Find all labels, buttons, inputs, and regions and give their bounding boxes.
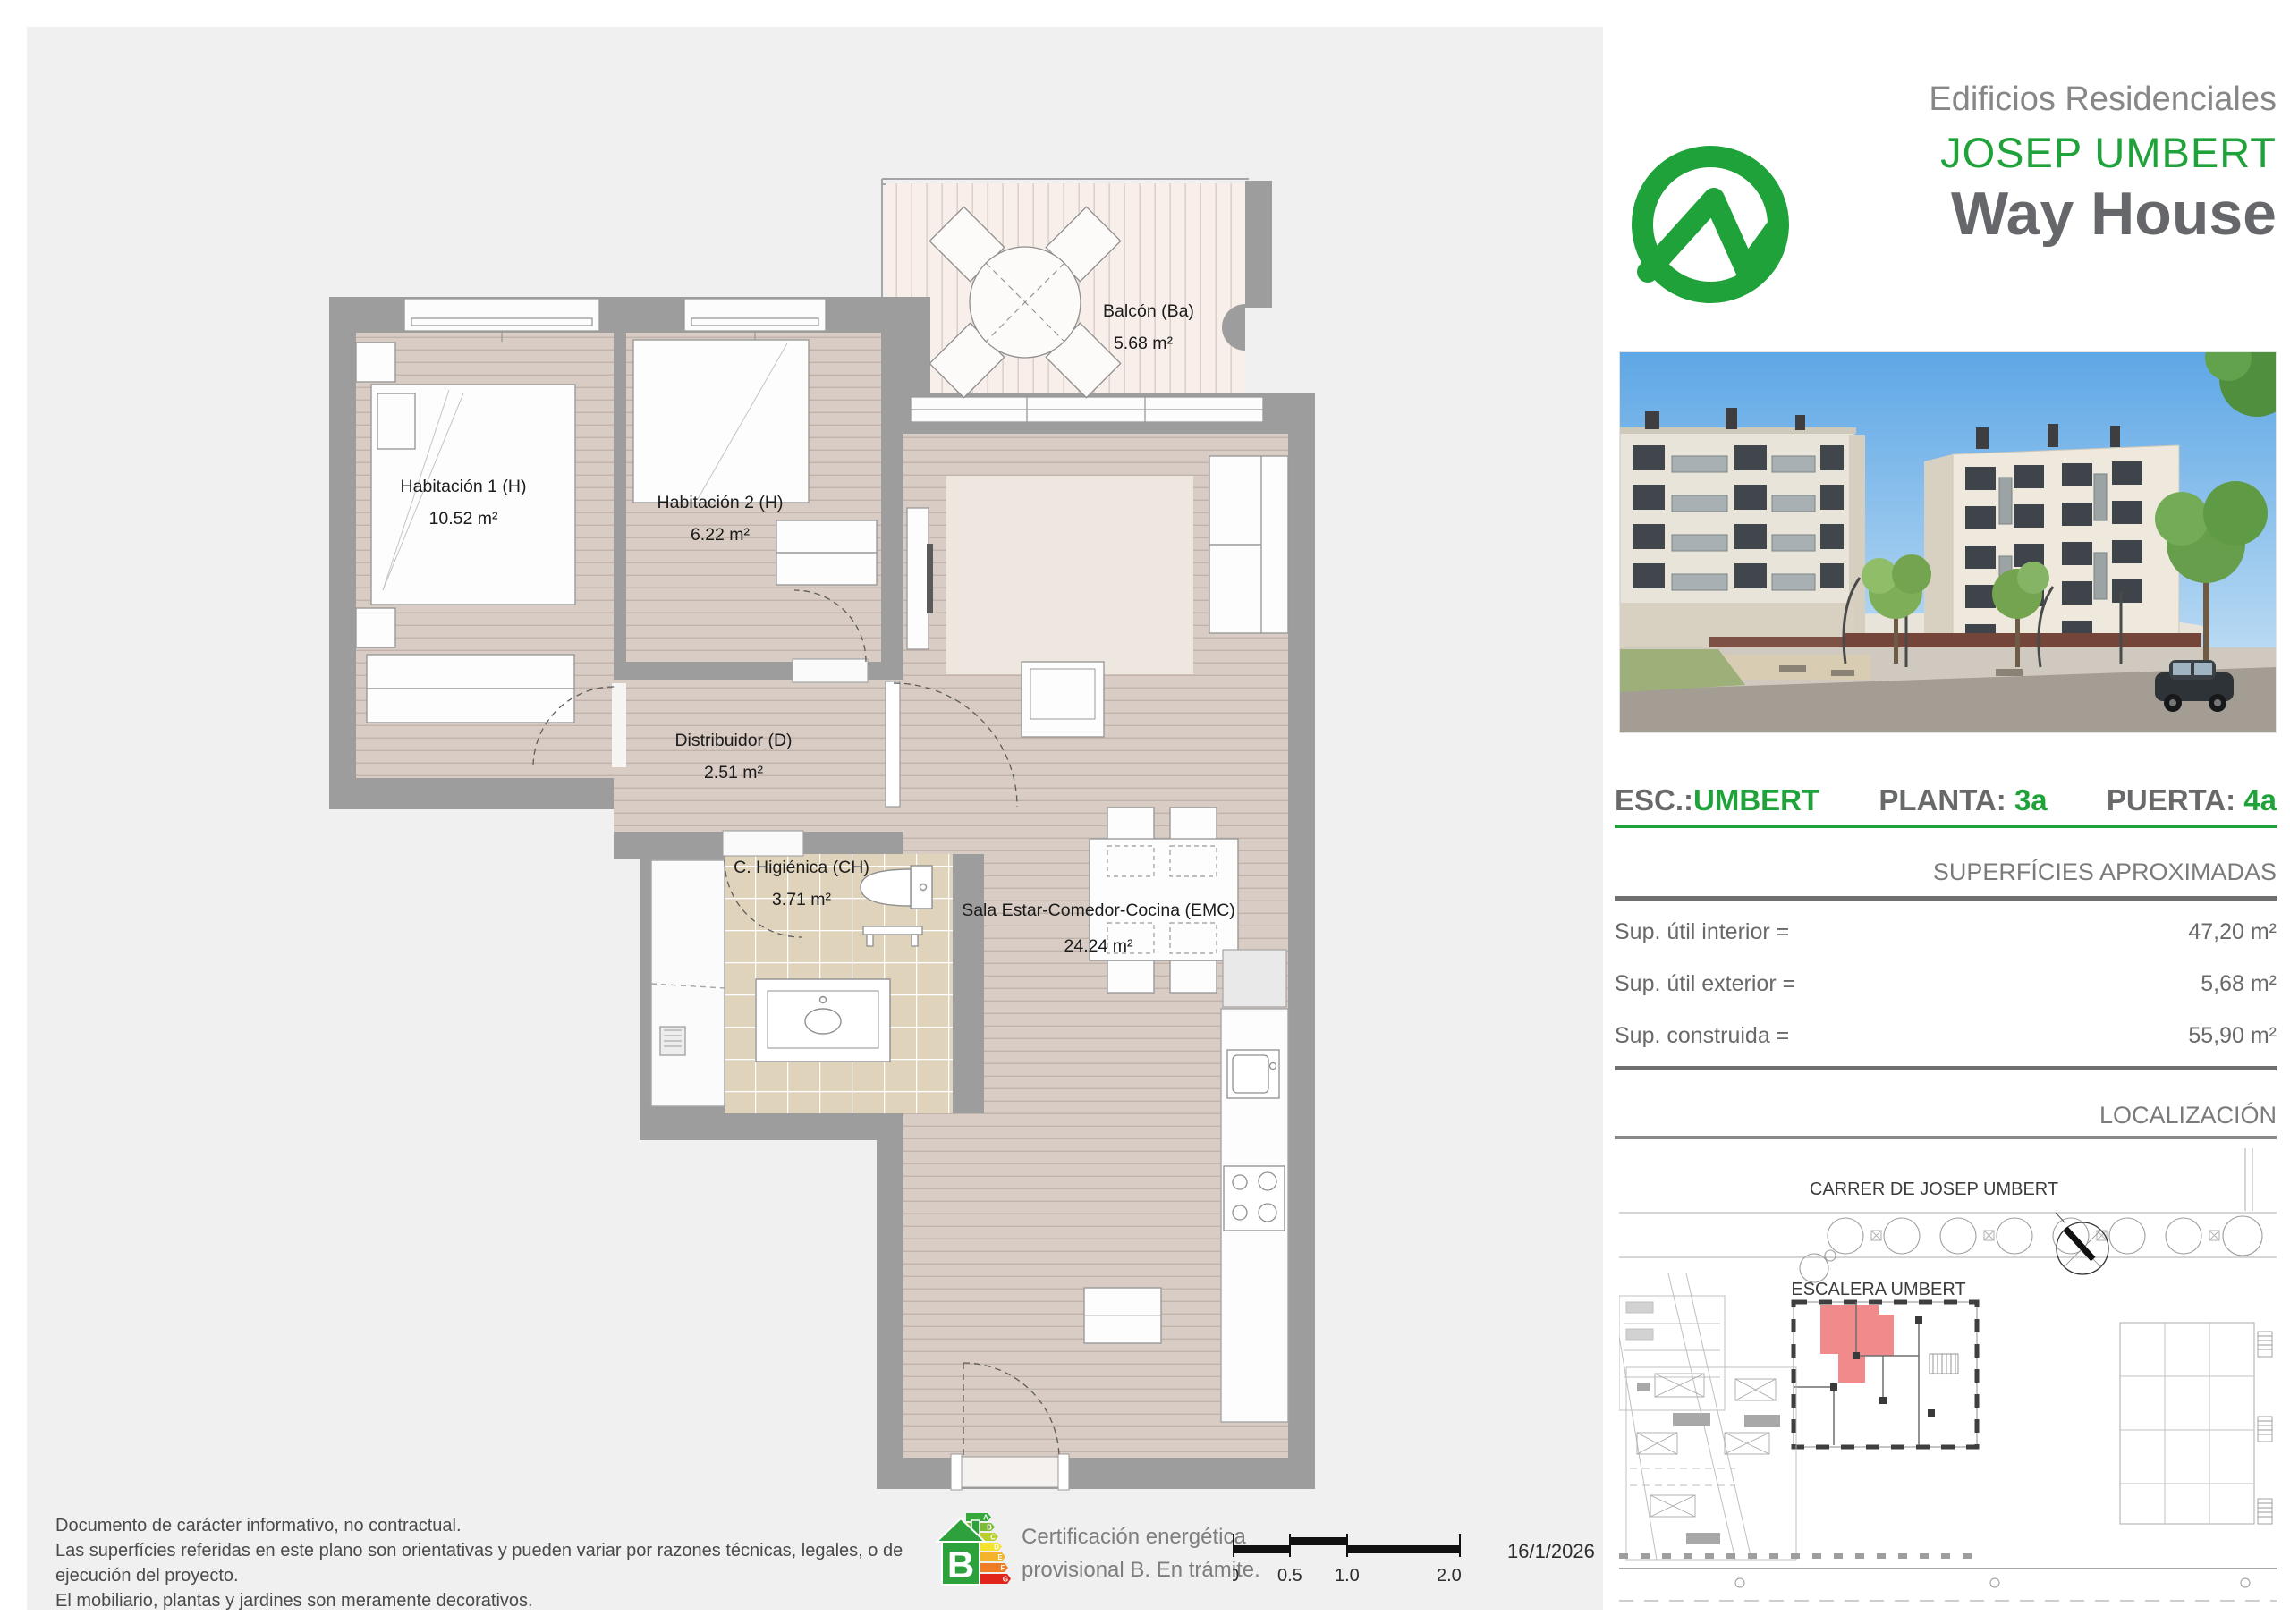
- surfaces-title: SUPERFÍCIES APROXIMADAS: [1615, 859, 2277, 886]
- surface-row: Sup. construida = 55,90 m²: [1615, 1023, 2277, 1049]
- stair-label: ESCALERA UMBERT: [1791, 1280, 1965, 1299]
- energy-text-line: Certificación energética: [1022, 1520, 1260, 1553]
- brand-logo: [1621, 132, 1800, 311]
- svg-text:F: F: [1001, 1564, 1005, 1572]
- esc-label: ESC.:: [1615, 783, 1693, 816]
- building-photo: [1619, 351, 2277, 733]
- floorplan-drawing: Habitación 1 (H) 10.52 m² Habitación 2 (…: [304, 125, 1324, 1520]
- puerta-field: PUERTA: 4a: [2107, 783, 2277, 817]
- wave-circle-logo-icon: [1621, 132, 1800, 311]
- surface-row: Sup. útil interior = 47,20 m²: [1615, 919, 2277, 945]
- escalera-building: [1794, 1302, 1977, 1447]
- surface-value: 55,90 m²: [2188, 1023, 2277, 1049]
- esc-field: ESC.:UMBERT: [1615, 783, 1819, 817]
- room-label: C. Higiénica (CH): [734, 858, 869, 877]
- surface-label: Sup. útil interior =: [1615, 919, 1789, 945]
- scale-tick: 0.5: [1277, 1566, 1302, 1586]
- header-kicker: Edificios Residenciales: [1929, 80, 2277, 119]
- room-label: Sala Estar-Comedor-Cocina (EMC): [962, 901, 1235, 920]
- scale-tick: 0: [1233, 1566, 1239, 1586]
- green-divider: [1615, 825, 2277, 828]
- rug: [946, 476, 1193, 674]
- header: Edificios Residenciales JOSEP UMBERT Way…: [1929, 80, 2277, 249]
- planta-value: 3a: [2014, 783, 2048, 816]
- disclaimer-line: El mobiliario, plantas y jardines son me…: [55, 1588, 914, 1613]
- bottom-street: [1619, 1556, 2277, 1601]
- street-label: CARRER DE JOSEP UMBERT: [1810, 1180, 2058, 1199]
- location-title: LOCALIZACIÓN: [1615, 1102, 2277, 1129]
- floorplan: Habitación 1 (H) 10.52 m² Habitación 2 (…: [304, 125, 1324, 1520]
- esc-value: UMBERT: [1693, 783, 1819, 816]
- disclaimer-line: Las superfícies referidas en este plano …: [55, 1538, 914, 1588]
- svg-text:G: G: [1003, 1576, 1008, 1584]
- disclaimer: Documento de carácter informativo, no co…: [55, 1513, 914, 1613]
- room-label: Distribuidor (D): [674, 731, 792, 750]
- surface-label: Sup. construida =: [1615, 1023, 1789, 1049]
- disclaimer-line: Documento de carácter informativo, no co…: [55, 1513, 914, 1538]
- plan-date: 16/1/2026: [1507, 1540, 1595, 1563]
- divider: [1615, 896, 2277, 901]
- scale-bar: 0 0.5 1.0 2.0 m.: [1233, 1527, 1467, 1590]
- street-lines: [1619, 1148, 2277, 1257]
- planta-field: PLANTA: 3a: [1879, 783, 2047, 817]
- unit-identifier: ESC.:UMBERT PLANTA: 3a PUERTA: 4a: [1615, 783, 2277, 817]
- room-area: 3.71 m²: [772, 890, 832, 909]
- street-trees: [1800, 1216, 2262, 1282]
- energy-certificate-icon: A B C D E F G B: [936, 1508, 1011, 1590]
- divider: [1615, 1066, 2277, 1070]
- scale-tick: 2.0 m.: [1437, 1566, 1467, 1586]
- second-building: [2120, 1323, 2272, 1524]
- kitchen-stove: [1224, 1166, 1285, 1231]
- svg-text:B: B: [987, 1524, 992, 1532]
- energy-text-line: provisional B. En trámite.: [1022, 1553, 1260, 1586]
- bed-habitacion1: [356, 343, 575, 723]
- building-right: [1924, 424, 2179, 667]
- room-label: Habitación 2 (H): [657, 493, 784, 512]
- svg-text:E: E: [997, 1553, 1003, 1561]
- site-plan-drawing: CARRER DE JOSEP UMBERT ESCALERA UMBERT: [1619, 1148, 2277, 1618]
- surface-value: 47,20 m²: [2188, 919, 2277, 945]
- building-render: [1620, 352, 2276, 732]
- room-area: 6.22 m²: [691, 525, 751, 545]
- kitchen-sink: [1227, 1050, 1279, 1098]
- planta-label: PLANTA:: [1879, 783, 2006, 816]
- shower: [651, 860, 725, 1106]
- energy-certificate-text: Certificación energética provisional B. …: [1022, 1520, 1260, 1586]
- svg-text:C: C: [990, 1534, 996, 1542]
- room-area: 24.24 m²: [1064, 936, 1133, 956]
- scale-tick: 1.0: [1335, 1566, 1360, 1586]
- puerta-value: 4a: [2243, 783, 2277, 816]
- surface-row: Sup. útil exterior = 5,68 m²: [1615, 971, 2277, 997]
- energy-house: B: [937, 1518, 985, 1586]
- site-plan: CARRER DE JOSEP UMBERT ESCALERA UMBERT: [1619, 1148, 2277, 1618]
- page-title: Way House: [1929, 179, 2277, 249]
- surface-label: Sup. útil exterior =: [1615, 971, 1795, 997]
- room-label: Balcón (Ba): [1103, 301, 1194, 321]
- room-label: Habitación 1 (H): [401, 477, 527, 496]
- building-left: [1620, 408, 1865, 647]
- energy-rating: B: [947, 1544, 974, 1586]
- room-area: 5.68 m²: [1114, 334, 1174, 353]
- svg-text:A: A: [983, 1514, 988, 1522]
- header-brand: JOSEP UMBERT: [1929, 128, 2277, 177]
- bath-vanity: [756, 979, 890, 1062]
- room-floor-distribuidor: [614, 680, 903, 832]
- room-area: 2.51 m²: [704, 763, 764, 782]
- svg-text:D: D: [994, 1544, 999, 1552]
- surface-value: 5,68 m²: [2201, 971, 2277, 997]
- puerta-label: PUERTA:: [2107, 783, 2235, 816]
- armchair: [1022, 662, 1104, 737]
- divider: [1615, 1136, 2277, 1139]
- sofa: [1209, 456, 1288, 633]
- room-area: 10.52 m²: [429, 509, 498, 529]
